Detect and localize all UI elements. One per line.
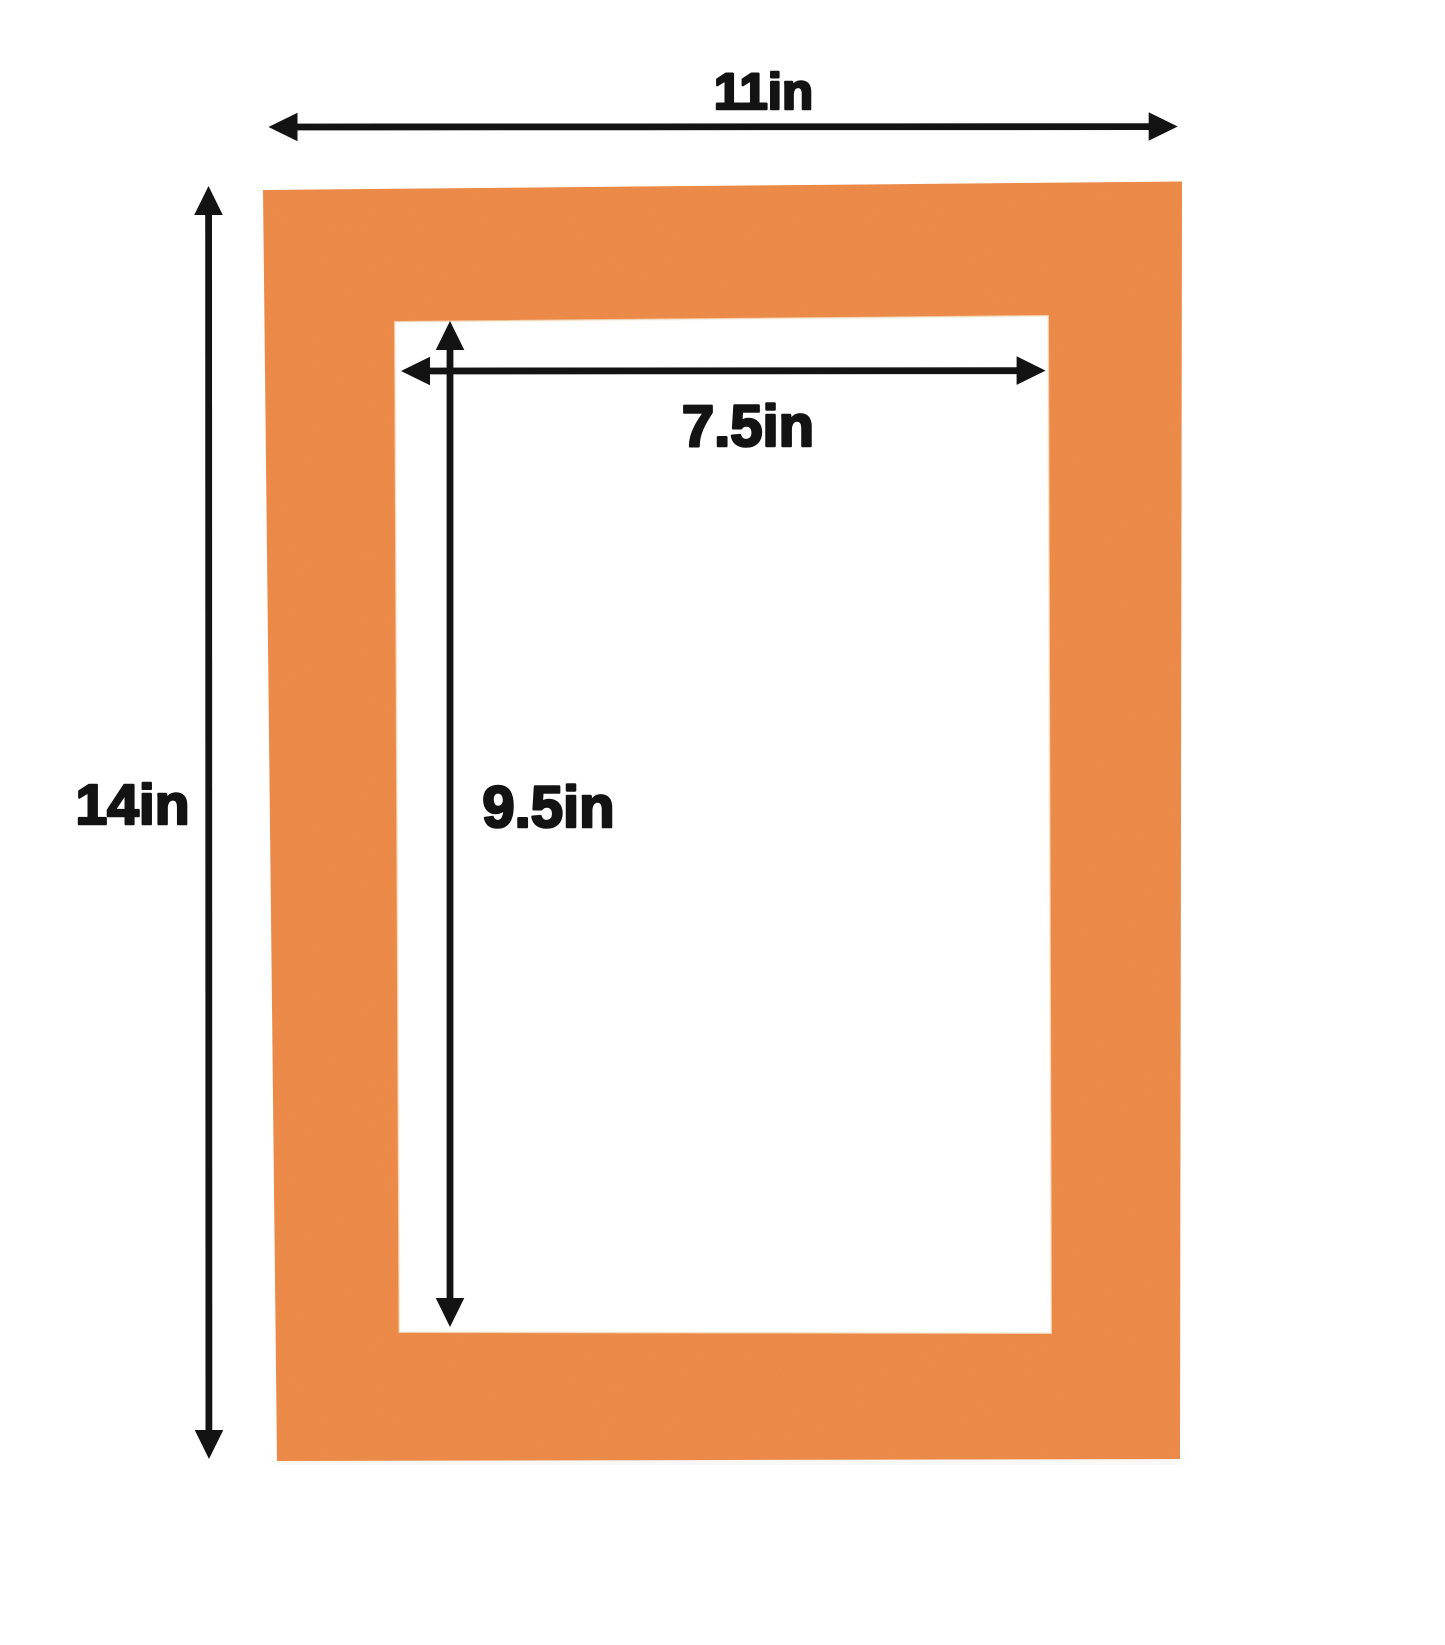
svg-text:11in: 11in bbox=[714, 63, 813, 120]
svg-text:7.5in: 7.5in bbox=[682, 394, 814, 459]
svg-text:14in: 14in bbox=[75, 773, 189, 837]
svg-text:9.5in: 9.5in bbox=[482, 775, 614, 840]
